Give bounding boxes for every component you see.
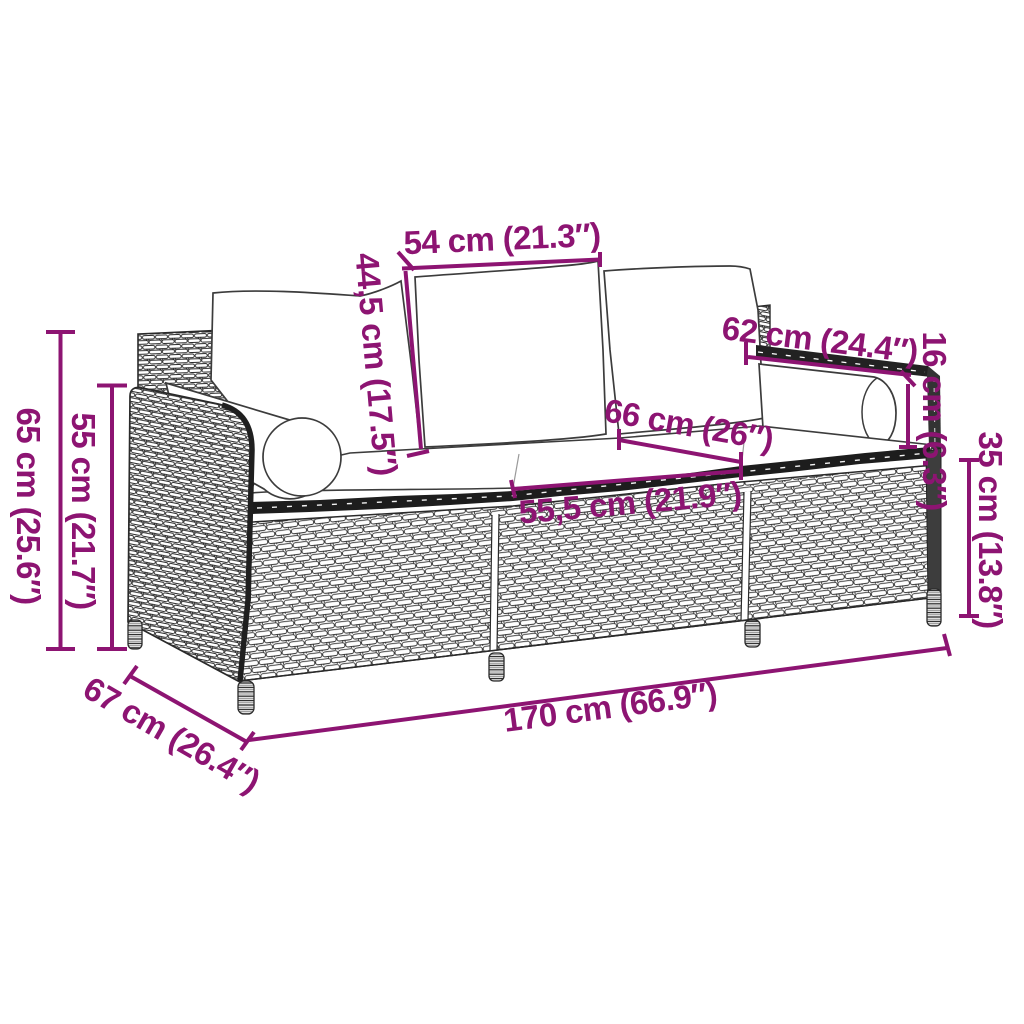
svg-text:65 cm (25.6″): 65 cm (25.6″) <box>10 408 47 605</box>
svg-text:16 cm (6.3″): 16 cm (6.3″) <box>916 331 953 510</box>
svg-text:35 cm (13.8″): 35 cm (13.8″) <box>972 432 1009 629</box>
svg-text:55 cm (21.7″): 55 cm (21.7″) <box>65 413 102 610</box>
